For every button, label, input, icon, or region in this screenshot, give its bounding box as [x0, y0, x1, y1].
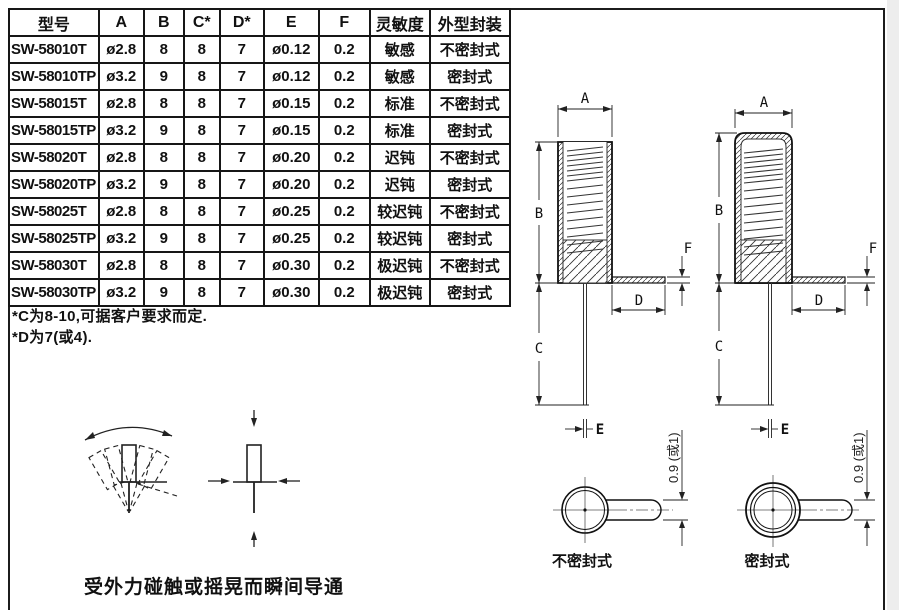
shock-arrows: [208, 410, 300, 547]
dim-a-cell: ø2.8: [99, 198, 144, 225]
model-cell: SW-58030TP: [9, 279, 99, 306]
dim-f-cell: 0.2: [319, 144, 370, 171]
dim-d-cell: 7: [220, 144, 264, 171]
dim-a-cell: ø2.8: [99, 252, 144, 279]
dim-c-cell: 8: [184, 117, 220, 144]
package-cell: 不密封式: [430, 90, 510, 117]
unsealed-label: 不密封式: [552, 552, 612, 570]
footnote-line: *C为8-10,可据客户要求而定.: [12, 306, 207, 327]
table-row: SW-58010TP ø3.2 9 8 7 ø0.12 0.2 敏感 密封式: [9, 63, 510, 90]
table-row: SW-58020TP ø3.2 9 8 7 ø0.20 0.2 迟钝 密封式: [9, 171, 510, 198]
dim-a-cell: ø2.8: [99, 90, 144, 117]
dim-f-cell: 0.2: [319, 117, 370, 144]
tab-width-label: 0.9 (或1): [666, 432, 681, 483]
dim-d-cell: 7: [220, 252, 264, 279]
table-row: SW-58015T ø2.8 8 8 7 ø0.15 0.2 标准 不密封式: [9, 90, 510, 117]
dim-b-cell: 9: [144, 117, 184, 144]
dim-f-cell: 0.2: [319, 279, 370, 306]
dim-label-c: C: [535, 341, 543, 357]
shock-diagram: [208, 410, 300, 547]
dim-b-cell: 9: [144, 225, 184, 252]
dim-e-cell: ø0.25: [264, 198, 319, 225]
model-cell: SW-58010T: [9, 36, 99, 63]
dim-a-cell: ø2.8: [99, 144, 144, 171]
dim-c-cell: 8: [184, 90, 220, 117]
sensitivity-cell: 较迟钝: [370, 225, 430, 252]
dim-b-cell: 9: [144, 63, 184, 90]
dim-label-d: D: [635, 293, 643, 309]
model-cell: SW-58025TP: [9, 225, 99, 252]
tab-width-label: 0.9 (或1): [851, 432, 866, 483]
model-cell: SW-58020TP: [9, 171, 99, 198]
sensitivity-cell: 迟钝: [370, 171, 430, 198]
dim-f-cell: 0.2: [319, 36, 370, 63]
model-cell: SW-58015T: [9, 90, 99, 117]
column-header: 外型封装: [430, 9, 510, 36]
actuation-diagram: [55, 395, 325, 570]
mounting-flange: [612, 277, 665, 283]
swing-fan-diagram: [85, 427, 177, 514]
dim-label-a: A: [760, 95, 769, 111]
package-cell: 不密封式: [430, 36, 510, 63]
dim-f-cell: 0.2: [319, 90, 370, 117]
dim-f-cell: 0.2: [319, 225, 370, 252]
package-cell: 不密封式: [430, 198, 510, 225]
dim-b-cell: 9: [144, 171, 184, 198]
unsealed-bottom-view: 0.9 (或1) 不密封式: [552, 430, 688, 570]
dim-b-cell: 9: [144, 279, 184, 306]
mounting-flange: [792, 277, 845, 283]
column-header: B: [144, 9, 184, 36]
table-row: SW-58025TP ø3.2 9 8 7 ø0.25 0.2 较迟钝 密封式: [9, 225, 510, 252]
dim-d-cell: 7: [220, 171, 264, 198]
lead-wire: [584, 283, 587, 405]
sealed-label: 密封式: [744, 552, 789, 570]
column-header: 灵敏度: [370, 9, 430, 36]
sensitivity-cell: 标准: [370, 90, 430, 117]
package-cell: 不密封式: [430, 144, 510, 171]
dim-c-cell: 8: [184, 198, 220, 225]
dim-label-e: E: [596, 422, 604, 438]
dim-d-cell: 7: [220, 117, 264, 144]
table-row: SW-58030T ø2.8 8 8 7 ø0.30 0.2 极迟钝 不密封式: [9, 252, 510, 279]
dim-a-cell: ø3.2: [99, 63, 144, 90]
dim-e-cell: ø0.12: [264, 36, 319, 63]
package-cell: 不密封式: [430, 252, 510, 279]
dim-label-f: F: [684, 241, 692, 257]
spec-table-header-row: 型号ABC*D*EF灵敏度外型封装: [9, 9, 510, 36]
dim-f-cell: 0.2: [319, 252, 370, 279]
column-header: D*: [220, 9, 264, 36]
dim-d-cell: 7: [220, 225, 264, 252]
dim-f-cell: 0.2: [319, 198, 370, 225]
column-header: 型号: [9, 9, 99, 36]
sensitivity-cell: 敏感: [370, 36, 430, 63]
sensitivity-cell: 敏感: [370, 63, 430, 90]
swing-arrow: [85, 427, 172, 440]
page-right-margin: [887, 0, 899, 610]
sensitivity-cell: 较迟钝: [370, 198, 430, 225]
dim-a-cell: ø3.2: [99, 279, 144, 306]
dim-a-cell: ø3.2: [99, 225, 144, 252]
dim-f-cell: 0.2: [319, 171, 370, 198]
model-cell: SW-58025T: [9, 198, 99, 225]
dim-b-cell: 8: [144, 252, 184, 279]
dim-label-e: E: [781, 422, 789, 438]
dim-c-cell: 8: [184, 144, 220, 171]
spec-table: 型号ABC*D*EF灵敏度外型封装 SW-58010T ø2.8 8 8 7 ø…: [8, 8, 511, 307]
column-header: C*: [184, 9, 220, 36]
dim-e-cell: ø0.20: [264, 144, 319, 171]
dim-b-cell: 8: [144, 90, 184, 117]
unsealed-side-view: A B C D F E: [535, 91, 692, 438]
dim-c-cell: 8: [184, 36, 220, 63]
dim-e-cell: ø0.25: [264, 225, 319, 252]
table-row: SW-58015TP ø3.2 9 8 7 ø0.15 0.2 标准 密封式: [9, 117, 510, 144]
sensitivity-cell: 标准: [370, 117, 430, 144]
dim-a-cell: ø3.2: [99, 117, 144, 144]
dim-e-cell: ø0.15: [264, 117, 319, 144]
model-cell: SW-58015TP: [9, 117, 99, 144]
table-row: SW-58030TP ø3.2 9 8 7 ø0.30 0.2 极迟钝 密封式: [9, 279, 510, 306]
sensitivity-cell: 极迟钝: [370, 252, 430, 279]
package-cell: 密封式: [430, 117, 510, 144]
dim-label-c: C: [715, 339, 723, 355]
model-cell: SW-58020T: [9, 144, 99, 171]
outline-drawings: A B C D F E 0.9 (或1) 不密封式: [515, 85, 881, 580]
model-cell: SW-58010TP: [9, 63, 99, 90]
dim-c-cell: 8: [184, 171, 220, 198]
model-cell: SW-58030T: [9, 252, 99, 279]
dim-c-cell: 8: [184, 225, 220, 252]
sealed-bottom-view: 0.9 (或1) 密封式: [737, 430, 875, 570]
column-header: E: [264, 9, 319, 36]
table-row: SW-58025T ø2.8 8 8 7 ø0.25 0.2 较迟钝 不密封式: [9, 198, 510, 225]
dim-e-cell: ø0.30: [264, 252, 319, 279]
table-row: SW-58020T ø2.8 8 8 7 ø0.20 0.2 迟钝 不密封式: [9, 144, 510, 171]
dim-f-cell: 0.2: [319, 63, 370, 90]
dim-e-cell: ø0.20: [264, 171, 319, 198]
dim-a-cell: ø2.8: [99, 36, 144, 63]
sealed-side-view: A B C D F E: [715, 95, 877, 438]
dim-b-cell: 8: [144, 36, 184, 63]
dim-b-cell: 8: [144, 198, 184, 225]
dim-a-cell: ø3.2: [99, 171, 144, 198]
column-header: A: [99, 9, 144, 36]
package-cell: 密封式: [430, 63, 510, 90]
dim-label-b: B: [715, 203, 723, 219]
dim-c-cell: 8: [184, 63, 220, 90]
dim-label-d: D: [815, 293, 823, 309]
footnote-line: *D为7(或4).: [12, 327, 207, 348]
dim-b-cell: 8: [144, 144, 184, 171]
dim-e-cell: ø0.12: [264, 63, 319, 90]
footnotes: *C为8-10,可据客户要求而定.*D为7(或4).: [12, 306, 207, 348]
column-header: F: [319, 9, 370, 36]
sensitivity-cell: 极迟钝: [370, 279, 430, 306]
dim-d-cell: 7: [220, 198, 264, 225]
dim-e-cell: ø0.30: [264, 279, 319, 306]
package-cell: 密封式: [430, 279, 510, 306]
dim-c-cell: 8: [184, 279, 220, 306]
package-cell: 密封式: [430, 225, 510, 252]
dim-label-a: A: [581, 91, 590, 107]
table-row: SW-58010T ø2.8 8 8 7 ø0.12 0.2 敏感 不密封式: [9, 36, 510, 63]
dim-d-cell: 7: [220, 63, 264, 90]
sensitivity-cell: 迟钝: [370, 144, 430, 171]
dim-d-cell: 7: [220, 36, 264, 63]
dim-c-cell: 8: [184, 252, 220, 279]
dim-d-cell: 7: [220, 279, 264, 306]
dim-label-f: F: [869, 241, 877, 257]
actuation-caption: 受外力碰触或摇晃而瞬间导通: [84, 572, 344, 599]
package-cell: 密封式: [430, 171, 510, 198]
lead-wire: [769, 283, 772, 405]
dim-label-b: B: [535, 206, 543, 222]
dim-e-cell: ø0.15: [264, 90, 319, 117]
dim-d-cell: 7: [220, 90, 264, 117]
